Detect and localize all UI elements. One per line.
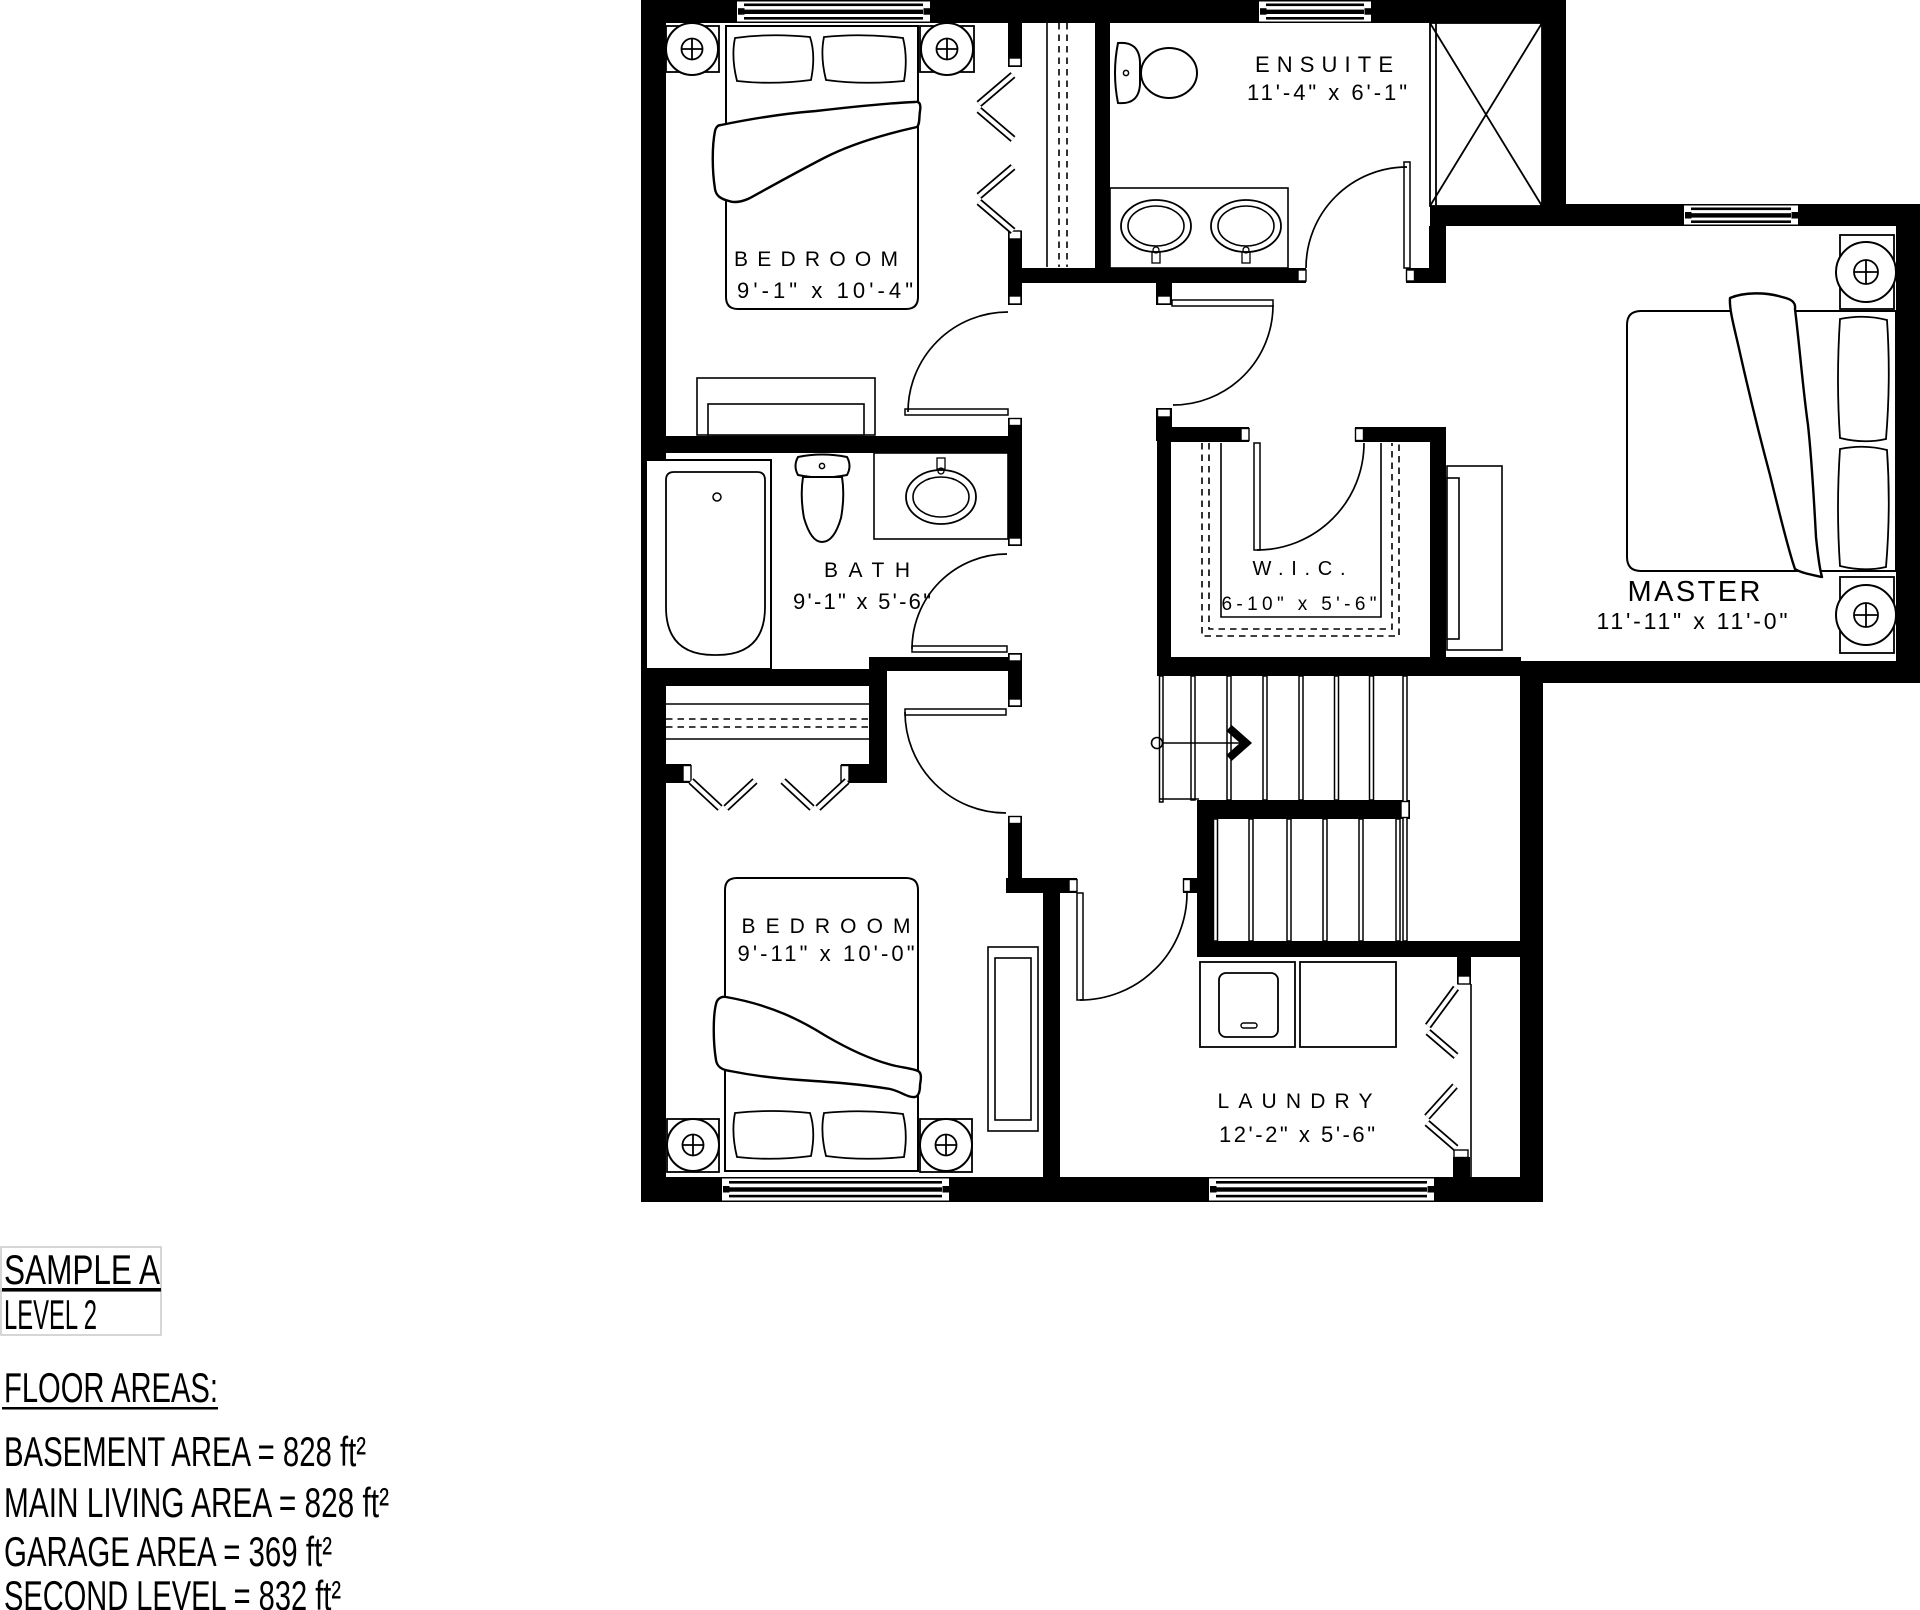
svg-text:MASTER: MASTER xyxy=(1628,576,1761,608)
svg-text:FLOOR AREAS:: FLOOR AREAS: xyxy=(4,1364,218,1411)
svg-text:GARAGE AREA = 369 ft²: GARAGE AREA = 369 ft² xyxy=(4,1528,332,1575)
svg-text:BASEMENT AREA = 828 ft²: BASEMENT AREA = 828 ft² xyxy=(4,1428,366,1475)
svg-text:LEVEL 2: LEVEL 2 xyxy=(4,1291,97,1338)
svg-text:MAIN LIVING AREA = 828 ft²: MAIN LIVING AREA = 828 ft² xyxy=(4,1479,389,1526)
svg-text:9'-1" x 5'-6": 9'-1" x 5'-6" xyxy=(793,589,931,614)
svg-text:9'-11" x 10'-0": 9'-11" x 10'-0" xyxy=(738,941,915,966)
svg-text:SAMPLE A: SAMPLE A xyxy=(4,1246,160,1293)
svg-text:LAUNDRY: LAUNDRY xyxy=(1218,1090,1373,1113)
svg-text:SECOND LEVEL = 832 ft²: SECOND LEVEL = 832 ft² xyxy=(4,1572,341,1610)
